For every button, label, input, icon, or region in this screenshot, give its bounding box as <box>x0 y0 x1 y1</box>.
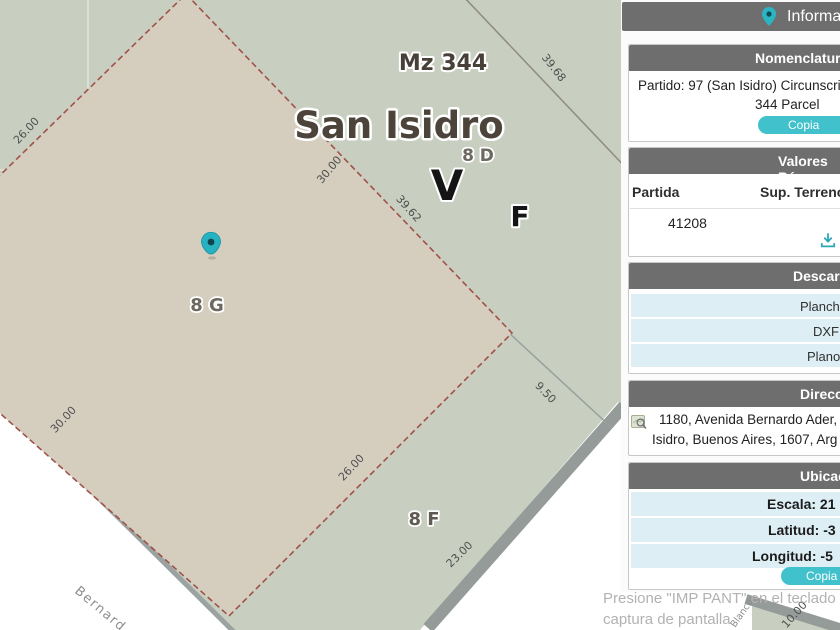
lot-label-8d: 8 D <box>462 146 494 166</box>
download-row-plano-label: Plano <box>807 349 840 364</box>
panel-ubicacion-title: Ubicaci <box>800 468 840 484</box>
panel-direccion-title: Direcci <box>800 386 840 402</box>
download-row-plancheta-label: Planche <box>800 299 840 314</box>
map-magnifier-icon <box>631 414 647 430</box>
gis-parcel-viewer: 26.00 30.00 39.62 39.68 30.00 26.00 9.50… <box>0 0 840 630</box>
screenshot-hint-line1: Presione "IMP PANT" en el teclado <box>603 588 840 609</box>
table-separator <box>630 208 840 209</box>
latitud-value: Latitud: -3 <box>768 522 836 538</box>
nomenclatura-line2: 344 Parcel <box>755 97 820 112</box>
panel-nomenclatura-title: Nomenclatura <box>755 50 840 66</box>
screenshot-hint: Presione "IMP PANT" en el teclado captur… <box>603 588 840 630</box>
city-label: San Isidro <box>294 104 503 147</box>
zone-label-f: F <box>510 200 529 233</box>
sidebar-title: Informa <box>787 8 840 26</box>
download-row-dxf-label: DXF <box>813 324 839 339</box>
download-icon[interactable] <box>820 233 836 249</box>
nomenclatura-line1: Partido: 97 (San Isidro) Circunscri <box>638 78 840 93</box>
copy-nomenclatura-button[interactable]: Copia <box>758 116 840 134</box>
info-sidebar: Informa Nomenclatura Partido: 97 (San Is… <box>621 0 840 592</box>
direccion-line1: 1180, Avenida Bernardo Ader, <box>659 412 837 427</box>
longitud-value: Longitud: -5 <box>752 548 833 564</box>
zone-label-v: V <box>431 161 464 210</box>
lot-label-8f: 8 F <box>408 509 439 530</box>
block-label: Mz 344 <box>399 51 487 76</box>
partida-value: 41208 <box>668 215 707 231</box>
panel-descargas-title: Descarg <box>793 268 840 284</box>
direccion-line2: Isidro, Buenos Aires, 1607, Arg <box>652 432 837 447</box>
escala-value: Escala: 21 <box>767 496 836 512</box>
column-header-sup-terreno: Sup. Terreno <box>760 184 840 200</box>
column-header-partida: Partida <box>632 184 679 200</box>
copy-ubicacion-button[interactable]: Copia <box>781 567 840 585</box>
download-row-dxf[interactable] <box>631 319 840 342</box>
lot-label-8g: 8 G <box>190 295 224 316</box>
pin-icon <box>762 7 776 26</box>
panel-valores-title: Valores Bá <box>778 153 840 185</box>
screenshot-hint-line2: captura de pantalla <box>603 609 840 630</box>
